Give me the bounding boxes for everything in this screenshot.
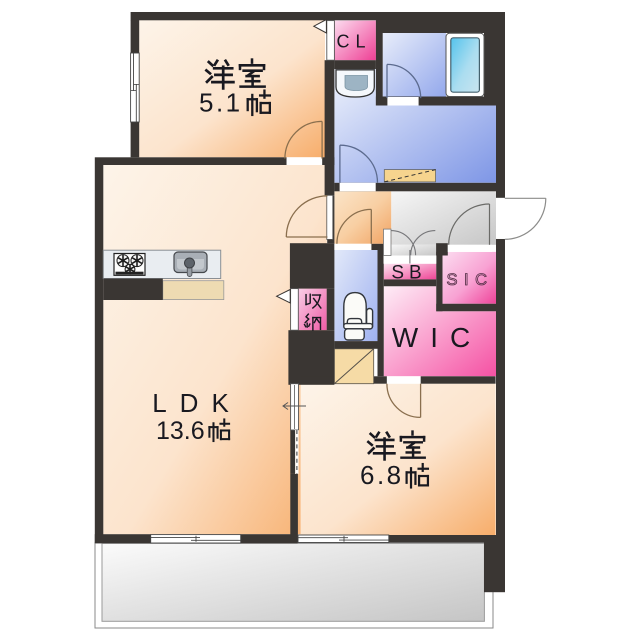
svg-text:5.1: 5.1 <box>199 88 243 118</box>
svg-text:CL: CL <box>336 32 371 52</box>
svg-text:13.6: 13.6 <box>156 417 205 445</box>
svg-text:LDK: LDK <box>152 388 242 418</box>
svg-text:SB: SB <box>391 263 426 284</box>
svg-text:6.8: 6.8 <box>360 460 404 490</box>
svg-text:SIC: SIC <box>446 271 493 289</box>
svg-text:WIC: WIC <box>392 322 482 353</box>
